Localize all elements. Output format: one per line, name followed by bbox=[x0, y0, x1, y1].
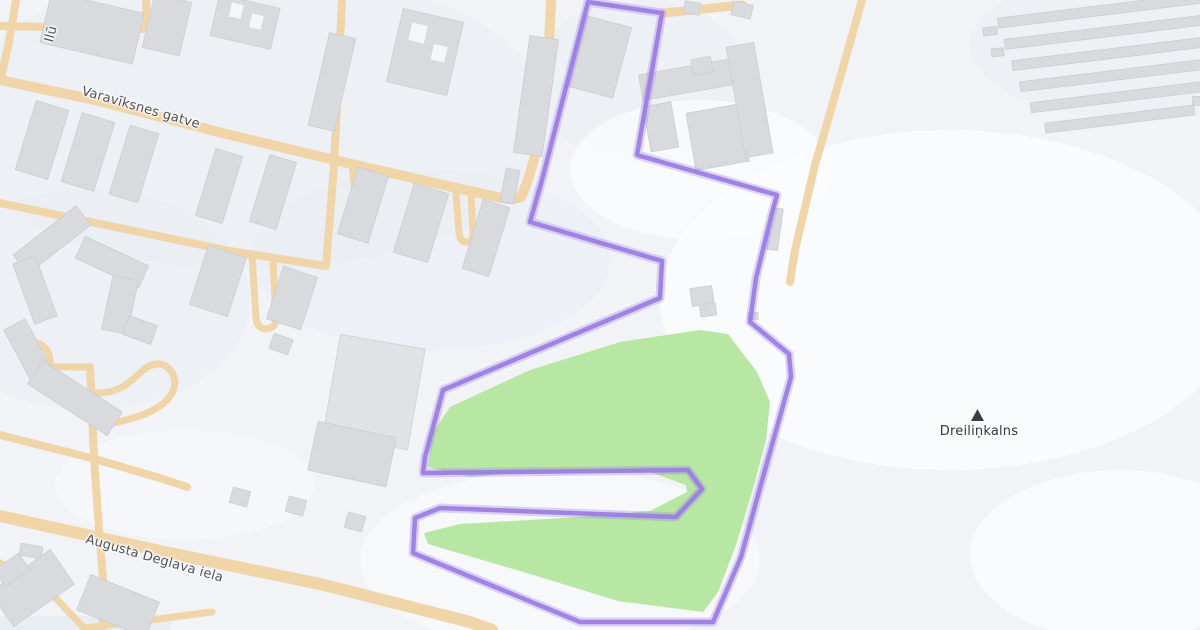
building bbox=[683, 1, 701, 16]
building bbox=[731, 1, 753, 19]
map-graphics bbox=[0, 0, 1200, 630]
building bbox=[344, 512, 366, 532]
building bbox=[699, 303, 717, 317]
map-canvas[interactable]: Varavīksnes gatve Augusta Deglava iela I… bbox=[0, 0, 1200, 630]
building bbox=[19, 543, 43, 559]
building bbox=[1193, 97, 1200, 106]
building bbox=[269, 333, 293, 355]
